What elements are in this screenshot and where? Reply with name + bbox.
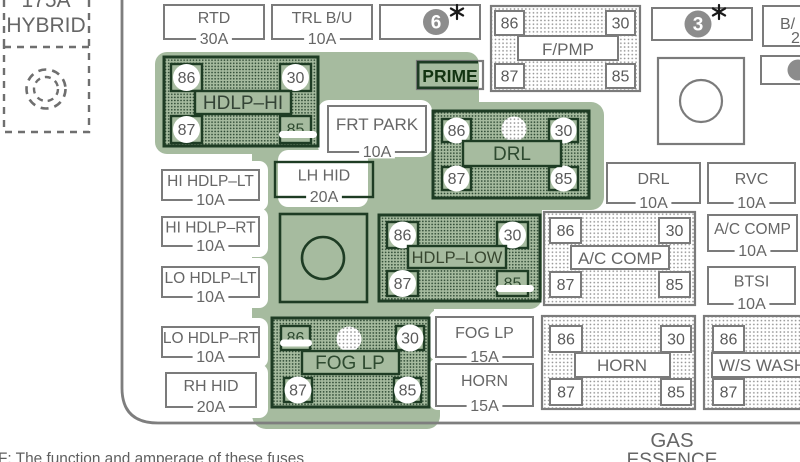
svg-text:HI HDLP–LT: HI HDLP–LT — [167, 173, 254, 190]
svg-text:10A: 10A — [363, 144, 392, 161]
svg-text:LO HDLP–LT: LO HDLP–LT — [165, 270, 257, 287]
svg-text:RH HID: RH HID — [183, 378, 238, 395]
svg-text:85: 85 — [399, 383, 417, 400]
svg-text:RTD: RTD — [198, 10, 231, 27]
svg-text:86: 86 — [557, 332, 575, 349]
svg-text:F/PMP: F/PMP — [542, 40, 594, 59]
svg-text:87: 87 — [394, 276, 412, 293]
svg-text:30: 30 — [401, 331, 419, 348]
svg-text:PRIME: PRIME — [422, 66, 477, 86]
svg-text:10A: 10A — [196, 349, 225, 366]
svg-text:87: 87 — [501, 69, 519, 86]
svg-text:HDLP–LOW: HDLP–LOW — [412, 249, 503, 267]
svg-text:20A: 20A — [310, 189, 339, 206]
svg-text:10A: 10A — [196, 289, 225, 306]
svg-text:30A: 30A — [200, 31, 229, 48]
svg-text:86: 86 — [557, 223, 575, 240]
svg-text:2: 2 — [791, 30, 800, 47]
svg-text:GAS: GAS — [650, 429, 693, 452]
svg-text:86: 86 — [394, 228, 412, 245]
svg-text:HORN: HORN — [597, 356, 647, 375]
svg-text:85: 85 — [667, 385, 685, 402]
svg-text:86: 86 — [448, 123, 466, 140]
svg-text:A/C COMP: A/C COMP — [714, 221, 791, 238]
svg-text:10A: 10A — [738, 243, 767, 260]
svg-text:10A: 10A — [737, 195, 766, 212]
svg-text:15A: 15A — [470, 398, 499, 415]
svg-text:30: 30 — [287, 70, 305, 87]
svg-text:86: 86 — [720, 332, 738, 349]
svg-text:HORN: HORN — [461, 373, 508, 390]
svg-text:6: 6 — [431, 13, 442, 34]
svg-text:FOG LP: FOG LP — [315, 353, 385, 374]
svg-text:FOG LP: FOG LP — [455, 325, 514, 342]
svg-text:87: 87 — [178, 122, 196, 139]
svg-text:10A: 10A — [639, 195, 668, 212]
svg-text:30: 30 — [667, 332, 685, 349]
svg-text:87: 87 — [557, 277, 575, 294]
svg-text:ESSENCE: ESSENCE — [627, 450, 718, 462]
svg-text:FRT PARK: FRT PARK — [336, 115, 419, 134]
svg-text:LH HID: LH HID — [298, 168, 350, 185]
svg-text:85: 85 — [612, 69, 630, 86]
svg-text:BTSI: BTSI — [734, 274, 770, 291]
svg-text:10A: 10A — [196, 238, 225, 255]
svg-text:30: 30 — [504, 228, 522, 245]
svg-text:DRL: DRL — [637, 171, 669, 188]
svg-text:10A: 10A — [196, 192, 225, 209]
svg-text:20A: 20A — [197, 399, 226, 416]
svg-text:30: 30 — [555, 123, 573, 140]
svg-text:HYBRID: HYBRID — [6, 14, 85, 37]
svg-text:87: 87 — [720, 385, 738, 402]
svg-text:TRL B/U: TRL B/U — [292, 10, 353, 27]
svg-text:87: 87 — [557, 385, 575, 402]
svg-text:10A: 10A — [308, 31, 337, 48]
svg-text:HI HDLP–RT: HI HDLP–RT — [165, 220, 256, 237]
svg-text:175A: 175A — [21, 0, 70, 12]
svg-text:85: 85 — [555, 171, 573, 188]
svg-text:30: 30 — [612, 16, 630, 33]
svg-text:HDLP–HI: HDLP–HI — [203, 93, 283, 114]
svg-text:10A: 10A — [737, 296, 766, 313]
svg-text:LO HDLP–RT: LO HDLP–RT — [163, 330, 259, 347]
svg-text:A/C COMP: A/C COMP — [578, 249, 662, 268]
svg-text:3: 3 — [693, 15, 704, 36]
svg-text:87: 87 — [448, 171, 466, 188]
svg-text:RVC: RVC — [735, 171, 769, 188]
svg-text:86: 86 — [178, 70, 196, 87]
svg-text:F: The function and amperage: F: The function and amperage of these fu… — [0, 451, 304, 462]
svg-text:87: 87 — [289, 383, 307, 400]
svg-text:30: 30 — [666, 223, 684, 240]
svg-text:DRL: DRL — [493, 144, 531, 165]
svg-text:86: 86 — [501, 16, 519, 33]
svg-text:W/S WASH: W/S WASH — [719, 356, 800, 375]
svg-text:85: 85 — [666, 277, 684, 294]
